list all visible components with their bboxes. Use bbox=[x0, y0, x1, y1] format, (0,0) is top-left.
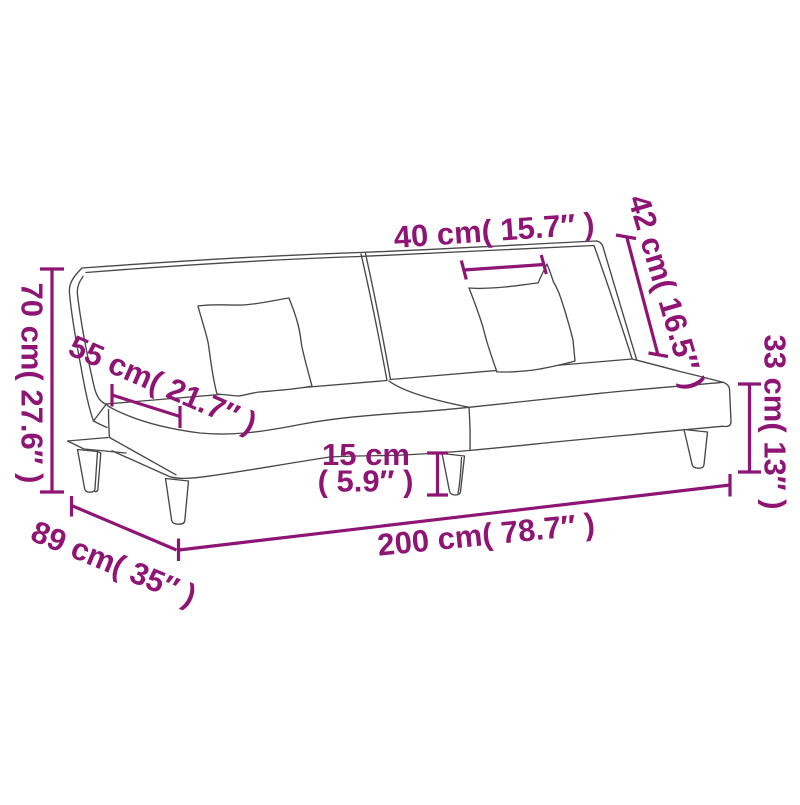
svg-text:( 5.9″ ): ( 5.9″ ) bbox=[318, 464, 414, 499]
svg-text:70 cm( 27.6″ ): 70 cm( 27.6″ ) bbox=[15, 283, 50, 484]
svg-text:33 cm( 13″ ): 33 cm( 13″ ) bbox=[758, 334, 793, 509]
